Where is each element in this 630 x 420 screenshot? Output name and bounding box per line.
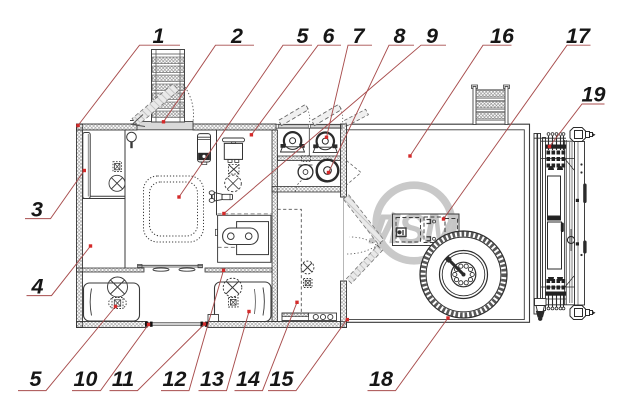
svg-text:4: 4 (31, 275, 44, 299)
svg-text:8: 8 (394, 24, 406, 48)
svg-text:14: 14 (236, 367, 260, 391)
svg-text:2: 2 (230, 24, 243, 48)
svg-text:17: 17 (566, 24, 591, 48)
svg-text:13: 13 (200, 367, 224, 391)
svg-text:18: 18 (369, 367, 393, 391)
svg-text:10: 10 (74, 367, 98, 391)
svg-text:5: 5 (30, 367, 43, 391)
svg-text:5: 5 (297, 24, 310, 48)
svg-text:12: 12 (163, 367, 187, 391)
svg-text:15: 15 (270, 367, 295, 391)
svg-text:9: 9 (426, 24, 438, 48)
svg-text:6: 6 (323, 24, 336, 48)
svg-text:7: 7 (353, 24, 366, 48)
svg-text:1: 1 (153, 24, 165, 48)
svg-text:16: 16 (490, 24, 515, 48)
svg-text:19: 19 (582, 83, 606, 107)
svg-text:11: 11 (112, 367, 134, 391)
svg-text:3: 3 (31, 198, 43, 222)
